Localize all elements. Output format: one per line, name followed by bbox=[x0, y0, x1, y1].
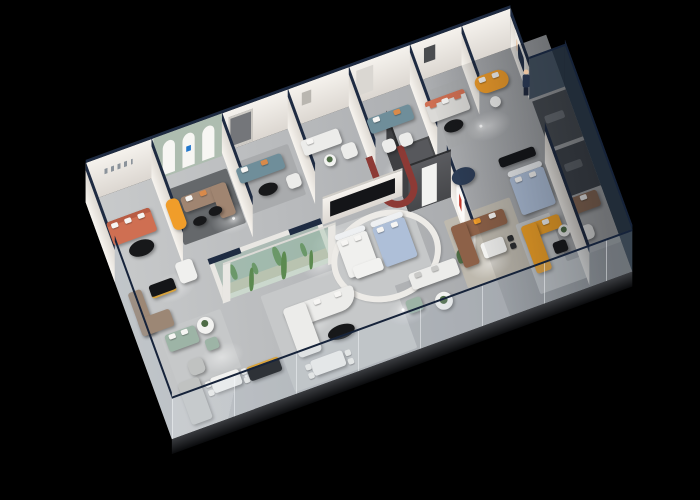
bed-pillow bbox=[376, 226, 384, 233]
arch-window bbox=[202, 124, 214, 161]
feature-wall-door bbox=[422, 163, 437, 207]
wall-niche-light bbox=[356, 65, 373, 97]
flower-vase bbox=[200, 319, 209, 328]
brand-logo-red bbox=[459, 193, 461, 211]
cushion bbox=[111, 222, 119, 229]
cactus bbox=[281, 251, 287, 281]
wall-art-frame bbox=[302, 89, 311, 105]
cushion bbox=[372, 116, 380, 123]
cushion bbox=[306, 138, 314, 145]
cushion bbox=[260, 159, 268, 166]
bed-pillow bbox=[354, 234, 362, 241]
cushion bbox=[313, 298, 321, 305]
showroom-render bbox=[0, 0, 700, 500]
cushion bbox=[180, 328, 188, 335]
cushion bbox=[168, 333, 176, 340]
terrarium-frame-pillar bbox=[223, 263, 231, 304]
bed-pillow bbox=[390, 221, 398, 228]
cactus bbox=[249, 267, 254, 292]
salesperson-figure bbox=[520, 69, 532, 95]
showroom-plan bbox=[86, 35, 633, 439]
cushion bbox=[240, 166, 248, 173]
cactus bbox=[309, 249, 313, 270]
arch-window bbox=[163, 138, 175, 175]
cushion bbox=[393, 108, 401, 115]
cushion bbox=[431, 265, 439, 272]
wall-art-frame bbox=[424, 44, 435, 63]
person-torso bbox=[522, 74, 529, 87]
arch-window bbox=[182, 131, 194, 168]
wall-signage bbox=[104, 159, 132, 175]
cushion bbox=[414, 271, 422, 278]
brand-logo-blue bbox=[186, 145, 191, 152]
cushion bbox=[334, 291, 342, 298]
cushion bbox=[199, 190, 207, 197]
bed-pillow bbox=[340, 239, 348, 246]
cushion bbox=[185, 195, 193, 202]
plant bbox=[326, 156, 334, 164]
person-legs bbox=[523, 87, 528, 95]
cushion bbox=[124, 217, 132, 224]
cushion bbox=[137, 212, 145, 219]
